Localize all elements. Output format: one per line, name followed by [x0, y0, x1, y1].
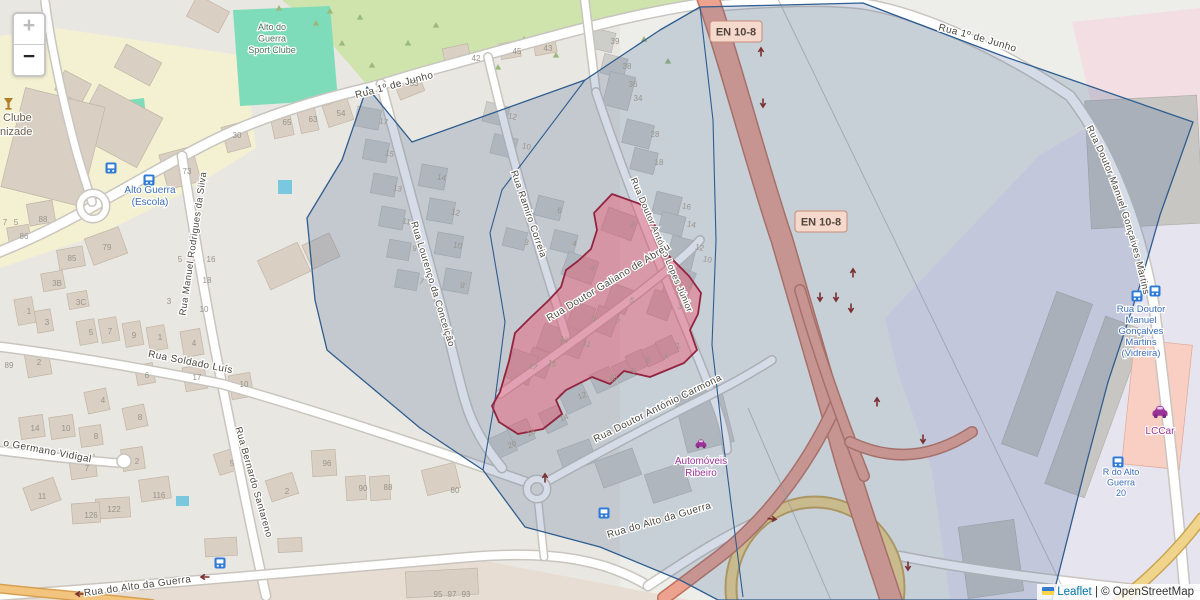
bus-stop-icon [599, 508, 610, 519]
house-number: 4 [101, 396, 106, 405]
house-number: 38 [623, 62, 632, 71]
ukraine-flag-icon [1042, 587, 1054, 595]
circle [697, 446, 700, 449]
building [265, 472, 298, 502]
swimming-pool [278, 180, 292, 194]
house-number: 86 [20, 232, 29, 241]
circle [703, 446, 706, 449]
clube-label-line1: Clube [3, 112, 32, 124]
rect [1157, 407, 1163, 410]
circle [601, 515, 603, 517]
building [14, 297, 36, 326]
attribution-separator: | [1092, 586, 1101, 598]
text: EN 10-8 [716, 27, 756, 39]
house-number: 39 [611, 37, 620, 46]
circle [1162, 414, 1166, 418]
house-number: 5 [230, 459, 235, 468]
house-number: 89 [5, 361, 14, 370]
rect [1115, 458, 1122, 462]
rect [699, 440, 703, 442]
house-number: 116 [153, 491, 166, 500]
house-number: 36 [629, 80, 638, 89]
clube-label-line2: nizade [0, 126, 32, 138]
house-number: 97 [448, 590, 457, 599]
road-shield: EN 10-8 [795, 211, 847, 232]
house-number: 88 [39, 215, 48, 224]
house-number: 79 [103, 243, 112, 252]
house-number: 53 [410, 79, 419, 88]
rect [108, 164, 115, 168]
zoom-out-button[interactable]: − [14, 45, 44, 75]
swimming-pool [176, 496, 189, 506]
house-number: 126 [84, 511, 98, 520]
house-number: 7 [3, 218, 8, 227]
circle [1156, 293, 1158, 295]
rect [601, 509, 608, 513]
building [122, 404, 148, 430]
rect [146, 176, 153, 180]
bus-stop-icon [215, 558, 226, 569]
house-number: 1 [158, 333, 163, 342]
house-number: 3C [76, 298, 86, 307]
house-number: 3B [52, 279, 62, 288]
house-number: 54 [337, 109, 346, 118]
circle [1119, 464, 1121, 466]
house-number: 18 [655, 158, 664, 167]
house-number: 3 [45, 318, 50, 327]
circle [1152, 293, 1154, 295]
house-number: 16 [207, 255, 216, 264]
tree-icon [276, 5, 282, 11]
house-number: 85 [68, 254, 77, 263]
circle [1138, 298, 1140, 300]
house-number: 80 [451, 486, 460, 495]
house-number: 14 [31, 424, 40, 433]
leaflet-link[interactable]: Leaflet [1057, 586, 1092, 598]
circle [1154, 414, 1158, 418]
house-number: 96 [323, 459, 332, 468]
house-number: 2 [135, 457, 140, 466]
house-number: 34 [634, 94, 643, 103]
school-bus-stop-label: Alto Guerra(Escola) [124, 185, 176, 208]
road-shield: EN 10-8 [710, 21, 762, 42]
house-number: 9 [132, 331, 137, 340]
circle [1134, 298, 1136, 300]
house-number: 45 [513, 47, 522, 56]
circle [108, 170, 110, 172]
house-number: 18 [203, 276, 212, 285]
house-number: 7 [108, 327, 113, 336]
building [257, 242, 310, 290]
building [76, 319, 98, 346]
text: EN 10-8 [801, 217, 841, 229]
house-number: 4 [192, 339, 197, 348]
building [79, 425, 104, 448]
map-canvas[interactable]: Rua 1º de JunhoRua 1º de JunhoRua Ramiro… [0, 0, 1200, 600]
building [84, 388, 110, 414]
circle [112, 170, 114, 172]
house-number: 8 [94, 432, 99, 441]
bus-stop-icon [144, 175, 155, 186]
house-number: 95 [434, 590, 443, 599]
leaflet-map[interactable]: Rua 1º de JunhoRua 1º de JunhoRua Ramiro… [0, 0, 1200, 600]
house-number: 5 [178, 255, 183, 264]
circle [1115, 464, 1117, 466]
rect [1152, 287, 1159, 291]
house-number: 10 [62, 424, 71, 433]
zoom-in-button[interactable]: + [14, 14, 44, 45]
circle [146, 182, 148, 184]
bus-stop-icon [106, 163, 117, 174]
house-number: 43 [544, 44, 553, 53]
house-number: 88 [384, 483, 393, 492]
building [278, 537, 303, 552]
house-number: 122 [107, 505, 121, 514]
house-number: 11 [38, 492, 47, 501]
zoom-control: + − [12, 12, 46, 77]
house-number: 5 [14, 218, 19, 227]
rect [217, 559, 224, 563]
house-number: 65 [283, 118, 292, 127]
osm-attribution: © OpenStreetMap [1101, 586, 1194, 598]
house-number: 2 [37, 358, 42, 367]
house-number: 42 [472, 54, 481, 63]
bus-stop-icon [1113, 457, 1124, 468]
house-number: 28 [651, 130, 660, 139]
house-number: 30 [233, 131, 242, 140]
house-number: 17 [193, 373, 202, 382]
lccar-label: LCCar [1146, 426, 1176, 437]
sport-field [233, 6, 338, 106]
house-number: 93 [462, 590, 471, 599]
vidreira-bus-stop-label: Rua DoutorManuelGonçalvesMartins(Vidreir… [1117, 304, 1166, 359]
circle [150, 182, 152, 184]
house-number: 8 [138, 413, 143, 422]
turning-circle [117, 454, 131, 468]
house-number: 5 [89, 328, 94, 337]
house-number: 7 [85, 464, 90, 473]
house-number: 1 [27, 307, 32, 316]
house-number: 3 [167, 297, 172, 306]
house-number: 73 [183, 167, 192, 176]
circle [605, 515, 607, 517]
circle [221, 565, 223, 567]
bus-stop-icon [1150, 286, 1161, 297]
building [205, 537, 238, 557]
house-number: 90 [359, 484, 368, 493]
house-number: 6 [145, 371, 150, 380]
circle [217, 565, 219, 567]
attribution-bar: Leaflet | © OpenStreetMap [1037, 584, 1200, 600]
rect [1134, 292, 1141, 296]
house-number: 10 [200, 305, 209, 314]
building [186, 0, 229, 33]
house-number: 63 [309, 115, 318, 124]
house-number: 2 [285, 487, 290, 496]
house-number: 10 [240, 380, 249, 389]
